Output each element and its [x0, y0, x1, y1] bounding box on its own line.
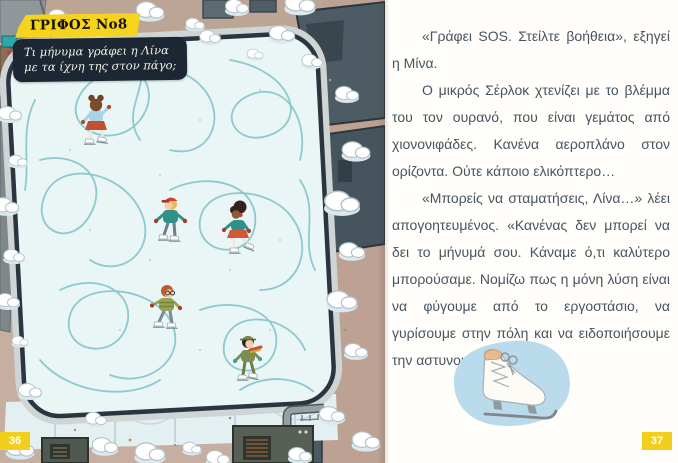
page-number-right: 37	[642, 432, 672, 450]
story-paragraph-2: Ο μικρός Σέρλοκ χτενίζει με το βλέμμα το…	[392, 77, 670, 185]
riddle-question-line2: με τα ίχνη της στον πάγο;	[24, 58, 176, 75]
story-paragraph-1: «Γράφει SOS. Στείλτε βοήθεια», εξηγεί η …	[392, 23, 670, 77]
story-text: «Γράφει SOS. Στείλτε βοήθεια», εξηγεί η …	[392, 23, 670, 374]
ice-skate-icon	[449, 338, 575, 428]
page-number-left: 36	[0, 432, 30, 450]
book-spread: ΓΡΙΦΟΣ Νο8 Τι μήνυμα γράφει η Λίνα με τα…	[0, 0, 678, 463]
ice-rink	[0, 25, 343, 425]
riddle-question-box: Τι μήνυμα γράφει η Λίνα με τα ίχνη της σ…	[13, 37, 188, 82]
riddle-number-badge: ΓΡΙΦΟΣ Νο8	[15, 13, 141, 38]
left-page: ΓΡΙΦΟΣ Νο8 Τι μήνυμα γράφει η Λίνα με τα…	[0, 0, 385, 463]
small-machine	[42, 438, 88, 463]
right-page: «Γράφει SOS. Στείλτε βοήθεια», εξηγεί η …	[385, 0, 678, 463]
